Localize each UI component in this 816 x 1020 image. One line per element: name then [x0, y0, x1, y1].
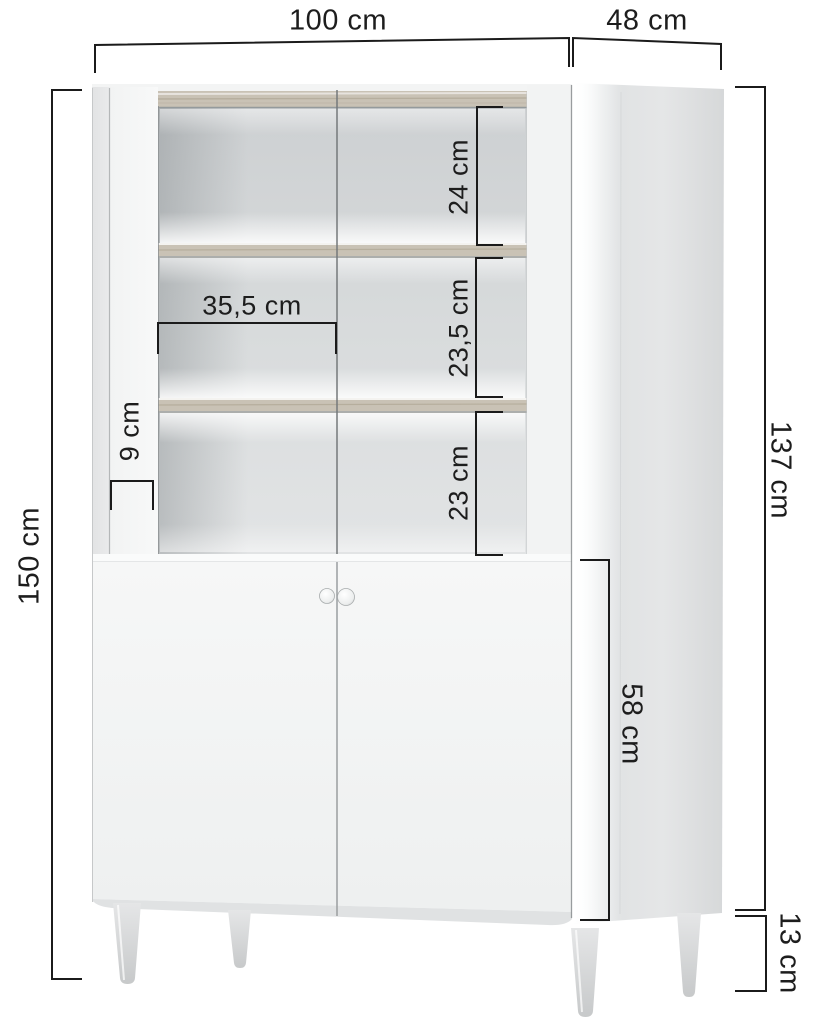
left-pilaster: [92, 87, 158, 560]
cabinet-drawing: [0, 0, 816, 1020]
lower-doors: [92, 562, 572, 912]
dim-label-depth: 48 cm: [606, 7, 687, 36]
leg-back-right: [677, 913, 701, 997]
wood-top-slab: [156, 90, 527, 108]
dim-line-leg-height: [735, 916, 766, 991]
right-pilaster: [527, 85, 572, 560]
dim-line-width: [95, 38, 569, 73]
dim-label-leg-height: 13 cm: [775, 912, 804, 993]
led-glow: [160, 524, 525, 552]
dim-line-depth: [573, 38, 721, 70]
dim-label-width: 100 cm: [289, 7, 387, 36]
dim-label-middle-compartment: 23,5 cm: [446, 278, 473, 378]
led-glow: [160, 212, 525, 243]
dimension-diagram: 100 cm 48 cm 150 cm 137 cm 13 cm 58 cm 2…: [0, 0, 816, 1020]
leg-front-right: [571, 928, 599, 1017]
dim-label-lower-door-height: 58 cm: [617, 683, 646, 764]
dim-label-bottom-compartment: 23 cm: [446, 445, 473, 521]
interior-left-shadow: [158, 106, 248, 554]
side-panel-corner-highlight: [572, 83, 618, 923]
dim-line-total-height: [52, 90, 82, 979]
door-knob-right: [338, 589, 355, 606]
led-glow: [160, 413, 525, 443]
dim-label-inner-shelf-width: 35,5 cm: [202, 293, 302, 320]
wood-shelf-upper: [158, 243, 527, 258]
dim-line-body-height: [735, 87, 765, 910]
wood-shelf-lower: [158, 398, 527, 413]
cabinet-illustration: [92, 83, 724, 1017]
door-knob-left: [320, 589, 335, 604]
dim-label-total-height: 150 cm: [16, 507, 45, 605]
leg-back-left: [228, 910, 251, 968]
led-glow: [160, 109, 525, 135]
dim-label-top-compartment: 24 cm: [446, 139, 473, 215]
top-frame-strip: [92, 84, 572, 91]
dim-label-body-height: 137 cm: [766, 421, 795, 519]
dim-label-front-edge-width: 9 cm: [117, 401, 144, 462]
leg-front-left: [113, 903, 141, 984]
